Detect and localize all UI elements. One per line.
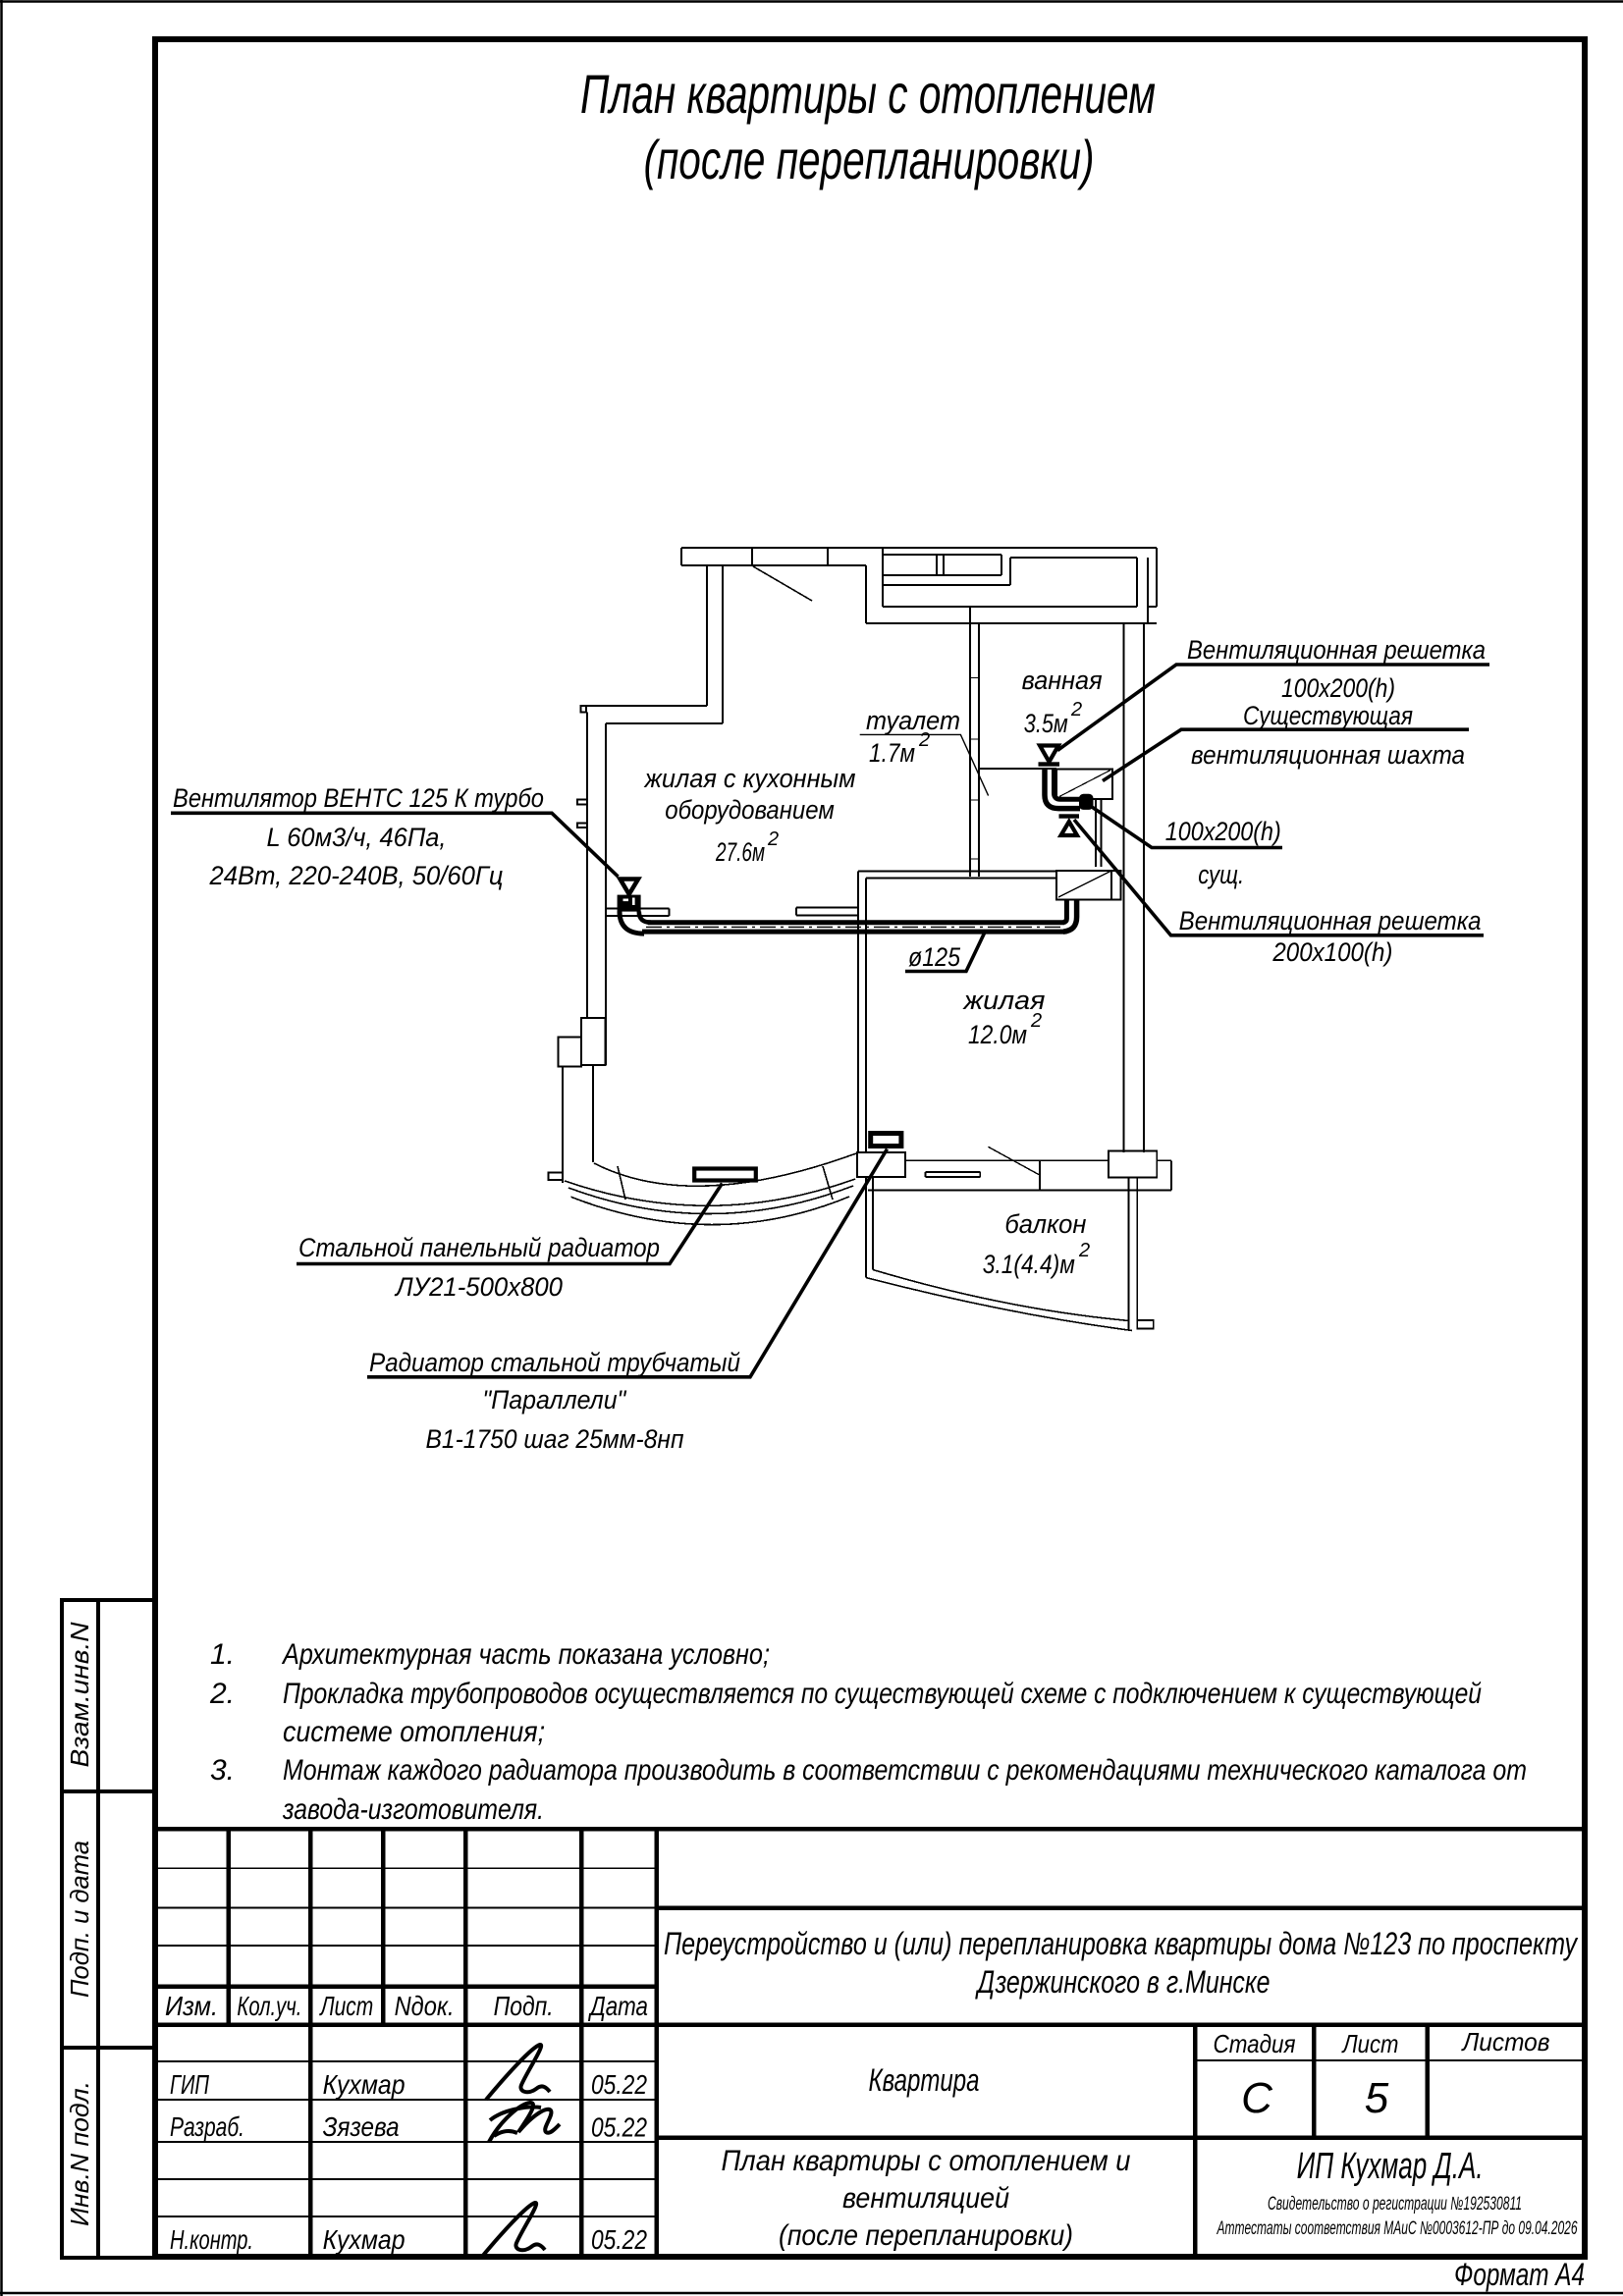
svg-text:Разраб.: Разраб. [170, 2111, 244, 2142]
svg-text:(после перепланировки): (после перепланировки) [779, 2219, 1073, 2252]
svg-text:Монтаж каждого радиатора произ: Монтаж каждого радиатора производить в с… [283, 1754, 1527, 1787]
svg-text:Инв.N подл.: Инв.N подл. [65, 2081, 94, 2226]
svg-text:План квартиры с отоплением и: План квартиры с отоплением и [722, 2145, 1131, 2177]
svg-text:жилая с кухонным: жилая с кухонным [644, 764, 856, 793]
svg-text:Nдок.: Nдок. [395, 1991, 455, 2021]
svg-text:ИП Кухмар Д.А.: ИП Кухмар Д.А. [1297, 2146, 1484, 2187]
svg-text:Лист: Лист [1341, 2029, 1399, 2058]
svg-text:5: 5 [1365, 2074, 1389, 2122]
svg-text:2: 2 [918, 729, 930, 751]
svg-text:Квартира: Квартира [869, 2062, 980, 2098]
svg-text:05.22: 05.22 [591, 2224, 647, 2255]
svg-text:05.22: 05.22 [591, 2069, 647, 2100]
svg-text:24Вт, 220-240В, 50/60Гц: 24Вт, 220-240В, 50/60Гц [209, 861, 504, 890]
svg-text:"Параллели": "Параллели" [482, 1385, 626, 1415]
svg-text:Свидетельство о регистрации №1: Свидетельство о регистрации №192530811 [1268, 2194, 1522, 2215]
svg-text:Подп.: Подп. [494, 1991, 554, 2021]
svg-text:Дата: Дата [588, 1991, 648, 2021]
svg-text:Стадия: Стадия [1214, 2029, 1296, 2058]
svg-text:Лист: Лист [319, 1991, 373, 2021]
svg-text:Вентиляционная решетка: Вентиляционная решетка [1179, 906, 1482, 935]
svg-text:Аттестаты соответствия МАиС №0: Аттестаты соответствия МАиС №0003612-ПР … [1217, 2218, 1578, 2239]
svg-text:Зязева: Зязева [323, 2111, 400, 2142]
svg-text:(после перепланировки): (после перепланировки) [644, 129, 1095, 190]
svg-text:туалет: туалет [866, 706, 960, 735]
svg-text:В1-1750 шаг 25мм-8нп: В1-1750 шаг 25мм-8нп [426, 1424, 684, 1454]
svg-text:Вентиляционная решетка: Вентиляционная решетка [1187, 635, 1486, 665]
svg-text:3.1(4.4)м: 3.1(4.4)м [983, 1250, 1075, 1279]
svg-text:2: 2 [1030, 1010, 1042, 1032]
svg-text:Формат А4: Формат А4 [1454, 2257, 1585, 2292]
svg-text:ванная: ванная [1022, 666, 1103, 695]
svg-text:Кол.уч.: Кол.уч. [237, 1991, 301, 2021]
svg-text:Изм.: Изм. [165, 1991, 218, 2021]
svg-text:системе отопления;: системе отопления; [283, 1716, 545, 1748]
svg-text:Существующая: Существующая [1243, 701, 1413, 730]
svg-text:План квартиры с отоплением: План квартиры с отоплением [580, 63, 1156, 125]
svg-text:27.6м: 27.6м [715, 837, 765, 867]
svg-text:завода-изготовителя.: завода-изготовителя. [282, 1793, 544, 1826]
svg-text:вентиляцией: вентиляцией [842, 2182, 1009, 2215]
svg-text:С: С [1241, 2074, 1273, 2122]
svg-text:ЛУ21-500х800: ЛУ21-500х800 [394, 1272, 563, 1302]
svg-text:Подп. и дата: Подп. и дата [65, 1841, 94, 1998]
svg-text:1.: 1. [210, 1638, 235, 1671]
svg-text:Кухмар: Кухмар [323, 2069, 406, 2100]
svg-text:Радиатор стальной трубчатый: Радиатор стальной трубчатый [369, 1348, 740, 1377]
svg-text:100х200(h): 100х200(h) [1281, 673, 1395, 703]
svg-text:оборудованием: оборудованием [665, 795, 835, 825]
svg-text:3.5м: 3.5м [1024, 709, 1068, 738]
svg-text:Взам.инв.N: Взам.инв.N [65, 1622, 94, 1767]
svg-text:05.22: 05.22 [591, 2112, 647, 2143]
svg-text:2: 2 [1078, 1240, 1090, 1261]
svg-text:Переустройство и (или) перепла: Переустройство и (или) перепланировка кв… [664, 1926, 1579, 1961]
svg-text:Вентилятор ВЕНТС 125 К турбо: Вентилятор ВЕНТС 125 К турбо [173, 783, 544, 813]
svg-text:2.: 2. [209, 1678, 235, 1710]
svg-text:Дзержинского в г.Минске: Дзержинского в г.Минске [975, 1964, 1270, 2000]
svg-text:100х200(h): 100х200(h) [1165, 817, 1281, 846]
svg-text:сущ.: сущ. [1198, 860, 1244, 889]
svg-text:балкон: балкон [1004, 1209, 1086, 1239]
svg-text:ø125: ø125 [908, 942, 961, 972]
svg-text:3.: 3. [210, 1754, 235, 1787]
svg-text:Листов: Листов [1461, 2027, 1550, 2056]
svg-text:ГИП: ГИП [170, 2069, 210, 2100]
svg-text:12.0м: 12.0м [968, 1020, 1027, 1049]
svg-text:Прокладка трубопроводов осущес: Прокладка трубопроводов осуществляется п… [283, 1678, 1482, 1710]
svg-text:Архитектурная часть показана у: Архитектурная часть показана условно; [281, 1638, 770, 1671]
svg-text:Кухмар: Кухмар [323, 2224, 406, 2255]
svg-text:2: 2 [767, 828, 779, 850]
svg-text:2: 2 [1070, 699, 1082, 721]
svg-text:L 60м3/ч, 46Па,: L 60м3/ч, 46Па, [267, 823, 447, 852]
svg-text:вентиляционная шахта: вентиляционная шахта [1191, 740, 1465, 770]
svg-text:Н.контр.: Н.контр. [170, 2224, 253, 2255]
svg-text:Стальной панельный радиатор: Стальной панельный радиатор [298, 1233, 660, 1262]
svg-text:1.7м: 1.7м [869, 738, 915, 768]
svg-text:200х100(h): 200х100(h) [1272, 937, 1393, 967]
